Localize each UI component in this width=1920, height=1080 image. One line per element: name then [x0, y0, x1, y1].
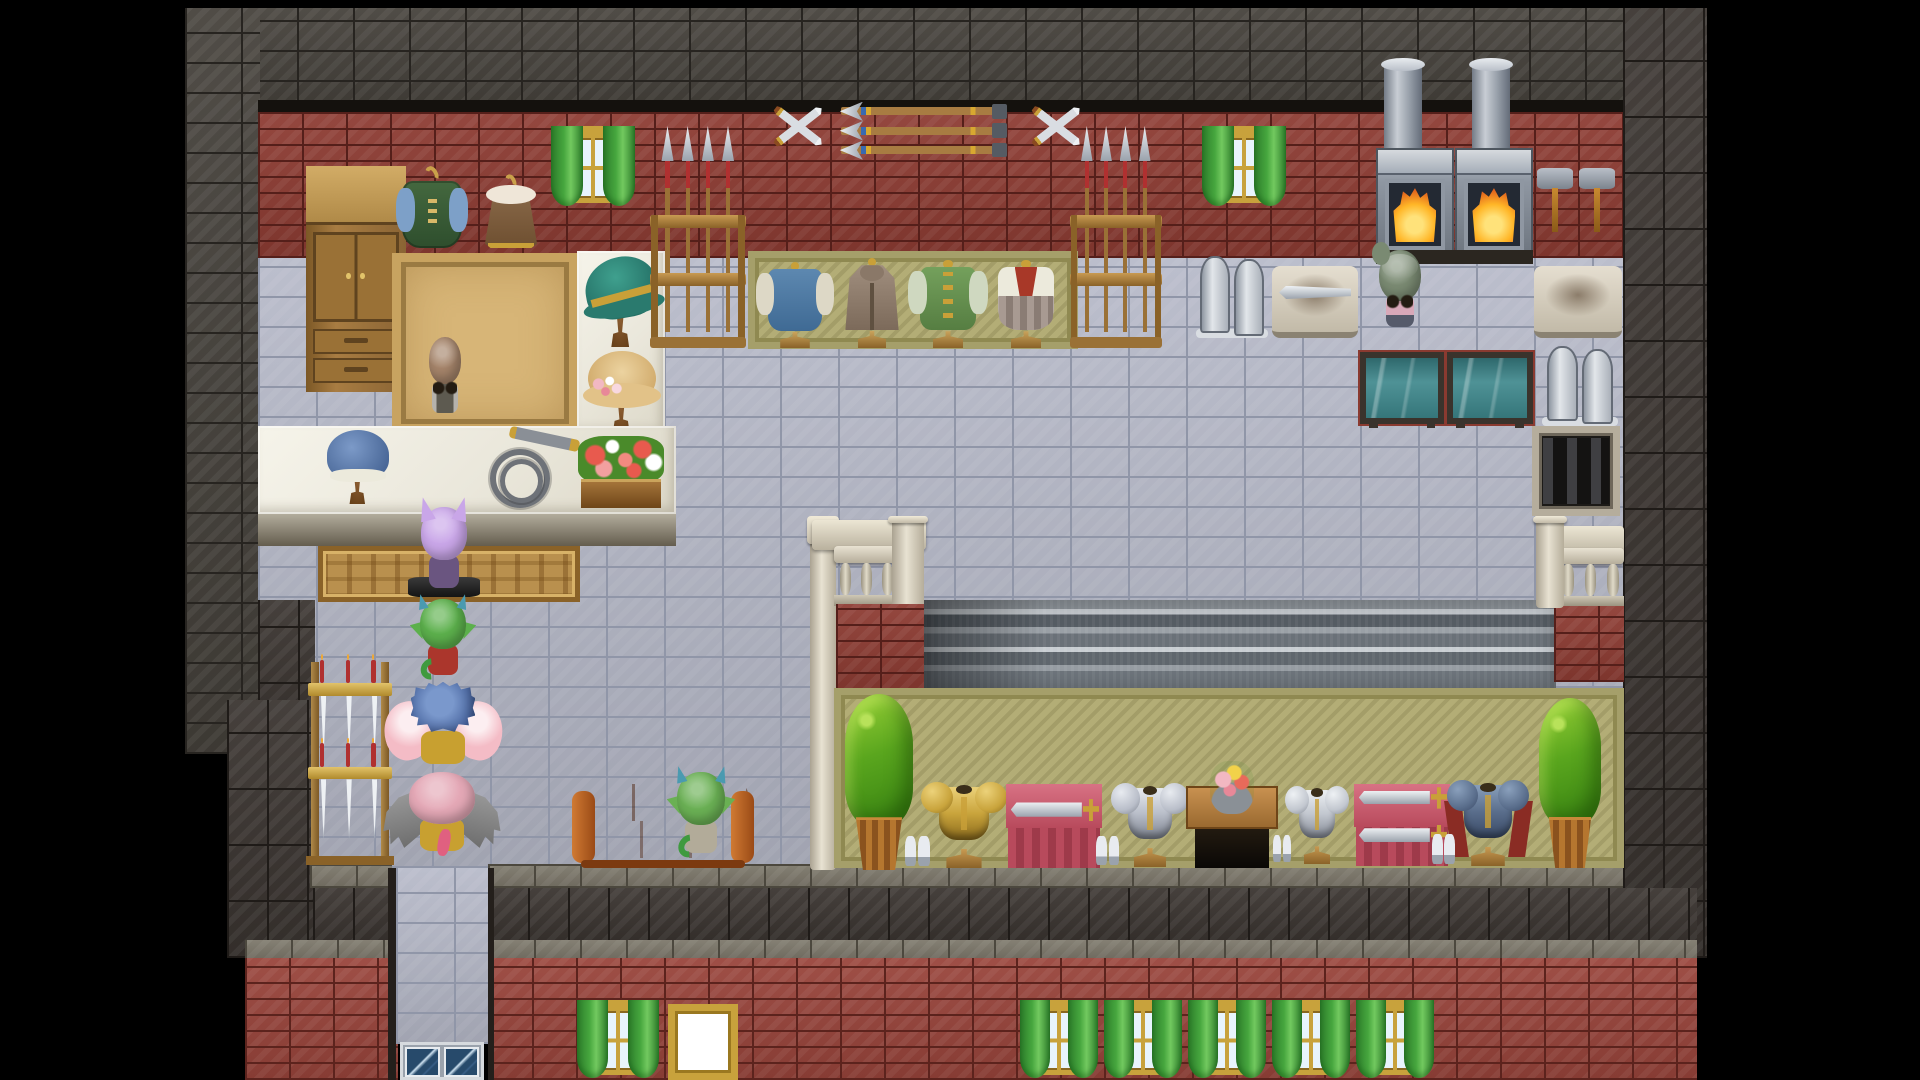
- rack-base: [650, 337, 746, 348]
- garment: [845, 265, 898, 330]
- garment: [768, 269, 823, 331]
- candle-icon: [320, 660, 324, 684]
- cabinet-drawer: [313, 329, 399, 354]
- candle-icon: [371, 660, 375, 684]
- potted-plant-right: [1536, 698, 1604, 868]
- steps-shadow: [924, 600, 1044, 690]
- armor-stand-gold[interactable]: [920, 780, 1008, 868]
- door-pane-right: [444, 1047, 479, 1077]
- sword-icon: [1011, 802, 1082, 816]
- game-viewport: [0, 0, 1920, 1080]
- cabinet-drawer: [313, 358, 399, 383]
- rack-base: [306, 856, 394, 865]
- metal-slab: [1547, 346, 1578, 421]
- bench-stain: [1546, 274, 1609, 316]
- curtain-left-icon: [1188, 1000, 1218, 1078]
- coiled-whip-display[interactable]: [486, 430, 580, 508]
- spear-icon: [706, 126, 710, 332]
- balustrade-base: [1556, 596, 1624, 606]
- forge-mouth: [1385, 179, 1444, 250]
- mannequin-knob: [868, 258, 877, 266]
- baluster: [840, 563, 851, 595]
- balustrade-rail: [1556, 548, 1624, 564]
- mannequin-base: [858, 331, 887, 348]
- mannequin-green-coat[interactable]: [910, 260, 986, 348]
- npc-demon-customer[interactable]: [411, 596, 475, 682]
- outer-wall-right: [1623, 8, 1707, 958]
- rack-base: [1070, 337, 1162, 348]
- metal-slab: [1200, 256, 1230, 333]
- window-lower-3: [1188, 1000, 1266, 1080]
- boots-icon: [1096, 836, 1118, 865]
- npc-face: [433, 380, 457, 395]
- curtain-right-icon: [1068, 1000, 1098, 1078]
- table-top: [1354, 784, 1450, 827]
- plant-pot: [1547, 817, 1593, 868]
- table-skirt: [1008, 828, 1100, 868]
- npc-blacksmith[interactable]: [1371, 246, 1429, 334]
- window-lower-2: [1104, 1000, 1182, 1080]
- npc-shopkeeper[interactable]: [418, 334, 472, 420]
- hanging-fur-coat[interactable]: [480, 174, 542, 250]
- pauldron-icon: [975, 782, 1008, 814]
- tank-leg: [1456, 418, 1465, 428]
- pauldron-icon: [1111, 783, 1141, 814]
- wall-hammers: [1534, 164, 1618, 238]
- planter-box: [581, 479, 662, 508]
- boots-icon: [905, 836, 930, 866]
- rack-bar: [1070, 273, 1162, 286]
- rack-bar: [308, 683, 392, 696]
- spear-rack-left[interactable]: [650, 126, 746, 348]
- hammer-icon: [1579, 168, 1614, 233]
- mannequin-base: [780, 332, 810, 348]
- entry-passage: [396, 868, 488, 1044]
- armor-stand-blue[interactable]: [1446, 778, 1530, 866]
- outer-wall-left: [185, 8, 260, 754]
- curtain-right-icon: [603, 126, 635, 206]
- stair-balustrade-right: [1556, 548, 1624, 606]
- facade-band: [488, 888, 1697, 942]
- metal-slab: [1582, 349, 1613, 424]
- rack-post: [1155, 215, 1161, 344]
- npc-winged-customer[interactable]: [396, 768, 488, 858]
- cabinet-top: [306, 166, 406, 225]
- pauldron-icon: [1325, 786, 1349, 815]
- window-lower-5: [1356, 1000, 1434, 1080]
- wardrobe-cabinet[interactable]: [306, 166, 406, 392]
- flower-blooms: [578, 436, 664, 484]
- stair-pillar-left: [810, 516, 836, 870]
- npc-body: [421, 731, 464, 765]
- fire-icon: [1393, 188, 1436, 242]
- hair-bun: [1372, 242, 1389, 265]
- window-lower-4: [1272, 1000, 1350, 1080]
- rack-bar: [1070, 215, 1162, 228]
- forge-cap: [1457, 150, 1531, 175]
- curtain-left-icon: [1356, 1000, 1386, 1078]
- facade-brick-left: [245, 958, 398, 1080]
- forge-cap: [1378, 150, 1452, 175]
- blade-icon: [346, 779, 351, 841]
- stair-brick-right: [1554, 604, 1624, 682]
- balustrade-rail: [834, 546, 898, 563]
- bonnet-hat-display[interactable]: [324, 428, 392, 504]
- metal-stock-left: [1196, 254, 1268, 338]
- window-upper-left: [551, 126, 635, 208]
- npc-head: [429, 337, 461, 383]
- armor-stand-base: [946, 849, 981, 868]
- curtain-left-icon: [1020, 1000, 1050, 1078]
- sword-table-single[interactable]: [1006, 784, 1102, 868]
- arrow-icon: [841, 107, 1006, 115]
- passage-edge-right: [488, 868, 494, 1080]
- curtain-left-icon: [1104, 1000, 1134, 1078]
- stair-balustrade-left: [834, 546, 898, 606]
- quench-tank-right: [1447, 352, 1533, 424]
- blade-icon: [372, 779, 377, 841]
- coat-collar: [486, 185, 536, 205]
- workbench-blade: [1272, 266, 1358, 338]
- npc-fairy-customer[interactable]: [398, 678, 488, 772]
- rack-post: [651, 215, 658, 344]
- curtain-right-icon: [1404, 1000, 1434, 1078]
- mannequin-white-dress[interactable]: [988, 260, 1064, 348]
- table-skirt: [1195, 829, 1269, 868]
- curtain-left-icon: [1272, 1000, 1302, 1078]
- baluster: [1607, 564, 1619, 595]
- arrow-icon: [841, 146, 1006, 154]
- plant-foliage: [845, 694, 913, 828]
- spear-icon: [1123, 126, 1127, 332]
- horn-icon: [673, 765, 687, 784]
- pillar-cap: [1533, 516, 1568, 523]
- blade-icon: [321, 779, 326, 841]
- spear-icon: [1104, 126, 1108, 332]
- horn-icon: [715, 765, 729, 784]
- pillar-cap: [888, 516, 928, 523]
- couch-base: [581, 860, 745, 868]
- forge-chimney-left: [1384, 60, 1422, 162]
- mannequin-blue-tunic[interactable]: [758, 262, 832, 348]
- curtain-right-icon: [1254, 126, 1286, 206]
- window-upper-right: [1202, 126, 1286, 208]
- spear-icon: [686, 126, 690, 332]
- straw-hat-display[interactable]: [585, 349, 659, 433]
- spear-rack-right[interactable]: [1070, 126, 1162, 348]
- boots-icon: [1432, 834, 1456, 864]
- rack-post: [738, 215, 745, 344]
- coat-collar: [428, 198, 437, 223]
- stair-brick-left: [836, 604, 924, 690]
- plant-foliage: [1539, 698, 1602, 827]
- forge-left: [1376, 148, 1454, 256]
- spear-icon: [665, 126, 669, 332]
- armor-stand-base: [1471, 847, 1505, 866]
- candle-icon: [346, 660, 350, 684]
- witch-hat-display[interactable]: [582, 255, 660, 347]
- stair-pillar-mid: [892, 516, 924, 608]
- forge-right: [1455, 148, 1533, 256]
- curtain-right-icon: [1236, 1000, 1266, 1078]
- shop-sign-board: [668, 1004, 738, 1080]
- npc-purple-customer[interactable]: [412, 503, 476, 595]
- sword-rack-tiered[interactable]: [306, 651, 394, 865]
- armor-stand-base: [1304, 846, 1330, 864]
- passage-edge-left: [388, 868, 396, 1080]
- candle-icon: [346, 743, 350, 767]
- mannequin-travel-cloak[interactable]: [836, 258, 908, 348]
- hat-icon: [327, 430, 390, 480]
- spear-icon: [1143, 126, 1147, 332]
- rack-bar: [650, 273, 746, 286]
- plant-pot: [854, 817, 904, 870]
- npc-head: [409, 772, 475, 824]
- fire-icon: [1472, 188, 1515, 242]
- crossed-swords-right: [1024, 96, 1088, 158]
- curtain-right-icon: [1152, 1000, 1182, 1078]
- rack-bar: [308, 767, 392, 780]
- hammer-icon: [1537, 168, 1572, 233]
- cabinet-doors: [313, 232, 399, 322]
- sword-icon: [1359, 828, 1430, 842]
- tank-leg: [1515, 418, 1524, 428]
- forge-chimney-right: [1472, 60, 1510, 162]
- whip-coil: [500, 459, 543, 503]
- tank-leg: [1369, 418, 1378, 428]
- spear-icon: [726, 126, 730, 332]
- button-trim: [943, 272, 952, 318]
- stair-pillar-right: [1536, 516, 1564, 608]
- left-wall-corner: [227, 700, 315, 958]
- baluster: [1585, 564, 1597, 595]
- arrow-display: [838, 104, 1010, 158]
- garment: [998, 267, 1054, 330]
- workbench-right: [1534, 266, 1622, 338]
- curtain-left-icon: [577, 1000, 608, 1078]
- curtain-left-icon: [1202, 126, 1234, 206]
- mannequin-base: [1011, 331, 1041, 348]
- quench-tank-left: [1360, 352, 1444, 424]
- rack-post: [1071, 215, 1077, 344]
- window-lower-left: [577, 1000, 659, 1080]
- armor-stand-plate[interactable]: [1284, 784, 1350, 864]
- tank-leg: [1427, 418, 1436, 428]
- facade-band-left: [313, 886, 398, 942]
- curtain-left-icon: [551, 126, 583, 206]
- candle-icon: [320, 743, 324, 767]
- metal-slab: [1234, 259, 1264, 336]
- hanging-vest[interactable]: [396, 166, 468, 250]
- candle-icon: [371, 743, 375, 767]
- flower-box: [578, 436, 664, 508]
- chimney-cap: [1469, 58, 1513, 71]
- ledge-left: [310, 864, 392, 888]
- window-lower-1: [1020, 1000, 1098, 1080]
- boots-icon: [1273, 835, 1291, 862]
- sword-icon: [1359, 791, 1430, 805]
- baluster: [861, 563, 872, 595]
- door-pane-left: [405, 1047, 440, 1077]
- metal-stock-right: [1542, 344, 1618, 426]
- floor-grate: [1532, 426, 1620, 516]
- armor-stand-base: [1134, 848, 1166, 867]
- grate-bars: [1543, 438, 1608, 505]
- ledge-bottom-left: [245, 940, 398, 960]
- entry-glass-door[interactable]: [400, 1042, 484, 1080]
- curtain-right-icon: [628, 1000, 659, 1078]
- forge-mouth: [1464, 179, 1523, 250]
- flower-vase-icon: [1210, 761, 1254, 813]
- mannequin-base: [933, 331, 963, 348]
- pauldron-icon: [1160, 783, 1190, 814]
- rack-bar: [650, 215, 746, 228]
- npc-goblin-customer[interactable]: [668, 768, 734, 860]
- ledge-bottom-right: [488, 940, 1697, 960]
- couch-arm: [731, 791, 754, 863]
- couch-arm: [572, 791, 595, 863]
- crossed-swords-left: [766, 96, 830, 158]
- pauldron-icon: [1447, 780, 1478, 812]
- flower-table[interactable]: [1186, 786, 1278, 868]
- npc-face: [1387, 294, 1413, 310]
- arrow-icon: [841, 127, 1006, 135]
- curtain-right-icon: [1320, 1000, 1350, 1078]
- hat-icon: [588, 351, 656, 406]
- chimney-cap: [1381, 58, 1425, 71]
- armor-stand-silver[interactable]: [1110, 781, 1190, 867]
